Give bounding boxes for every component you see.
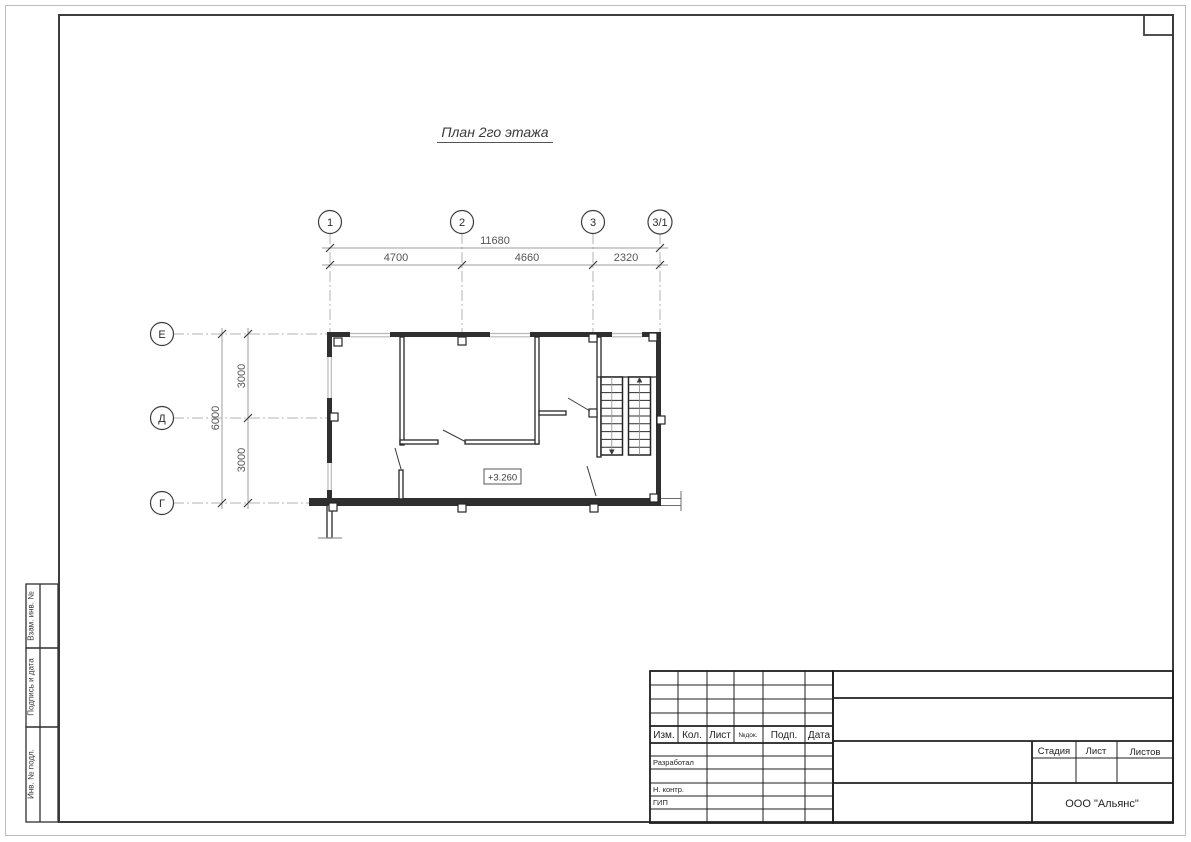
sheet-borders [6,6,1186,836]
axis-bubbles [151,210,673,515]
bottom-wall [309,498,661,506]
plan-title: План 2го этажа [441,124,548,140]
stairs [597,377,656,455]
dimension-texts: 11680 4700 4660 2320 6000 3000 3000 [210,235,638,472]
axis-label-e: Е [158,329,165,341]
dim-vspan-1: 3000 [236,364,248,388]
axis-label-1: 1 [327,217,333,229]
stamp-col-podp: Подп. [771,730,798,741]
stamp-col-izm: Изм. [653,730,674,741]
margin-label-vzam: Взам. инв. № [27,591,36,641]
margin-labels: Взам. инв. № Подпись и дата Инв. № подл. [27,591,36,799]
axis-label-g: Г [159,498,165,510]
stamp-sheet-header: Лист [1086,746,1107,757]
plan-title-group: План 2го этажа [437,124,553,143]
revision-table [650,671,833,823]
floor-plan: +3.260 [309,332,681,538]
axis-label-2: 2 [459,217,465,229]
drawing-sheet: Взам. инв. № Подпись и дата Инв. № подл.… [0,0,1191,842]
axis-label-d: Д [158,413,166,425]
dim-total-height: 6000 [210,406,222,430]
stamp-col-data: Дата [808,730,831,741]
dim-vspan-2: 3000 [236,448,248,472]
elevation-mark: +3.260 [484,469,521,484]
margin-label-inv: Инв. № подл. [27,749,36,799]
axis-label-3-1: 3/1 [652,217,667,229]
dim-span-1: 4700 [384,252,408,264]
stamp-company: ООО "Альянс" [1065,798,1139,810]
dim-total-width: 11680 [480,235,510,247]
axis-label-3: 3 [590,217,596,229]
axis-bubble-labels: 1 2 3 3/1 Е Д Г [158,217,667,510]
frame-corner-box [1144,15,1173,35]
dim-span-2: 4660 [515,252,539,264]
title-block-texts: Изм. Кол. Лист №док. Подп. Дата Разработ… [653,730,1160,810]
stamp-role-ncontrol: Н. контр. [653,785,684,794]
stamp-col-list: Лист [709,730,731,741]
stamp-col-ndok: №док. [738,732,757,739]
margin-label-podpis: Подпись и дата [27,658,36,716]
dim-span-3: 2320 [614,252,638,264]
lower-level-edges [661,491,681,511]
stamp-sheets-header: Листов [1130,747,1161,758]
cad-drawing-canvas: Взам. инв. № Подпись и дата Инв. № подл.… [0,0,1191,842]
stamp-role-developer: Разработал [653,758,694,767]
elevation-value: +3.260 [488,473,517,484]
stamp-stage-header: Стадия [1038,746,1070,757]
stamp-col-kol: Кол. [682,730,702,741]
stamp-role-gip: ГИП [653,798,668,807]
